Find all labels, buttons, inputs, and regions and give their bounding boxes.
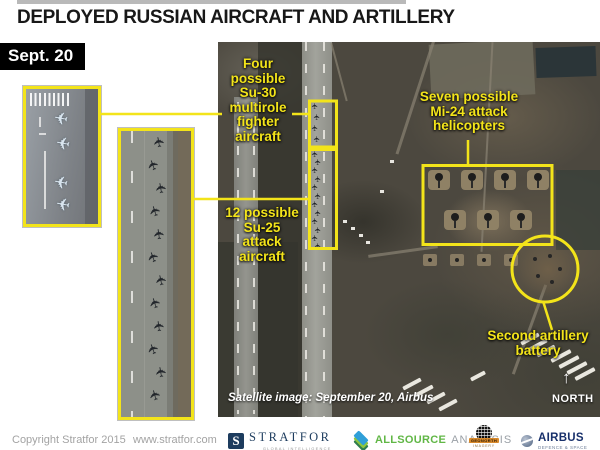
inset-su25-closeup: ✈ ✈ ✈ ✈ ✈ ✈ ✈ ✈ ✈ ✈ ✈ ✈ [118,128,194,420]
artillery-piece [536,274,540,278]
building [438,399,458,412]
helicopter-pad [461,170,483,190]
helicopter-pad [477,210,499,230]
road [330,43,347,101]
copyright-text: Copyright Stratfor 2015 [12,434,126,446]
runway-centerline [44,151,46,209]
helicopter-pad [510,210,532,230]
vehicle [351,227,355,230]
su25-aircraft-icon: ✈ [314,193,322,200]
image-caption: Satellite image: September 20, Airbus [228,392,433,404]
airbus-logo: AIRBUS DEFENCE & SPACE [521,432,587,450]
runway-marking [39,133,46,135]
su30-aircraft-icon: ✈ [313,136,321,143]
airbus-globe-icon [521,435,533,447]
mi24-callout-label: Seven possible Mi-24 attack helicopters [403,90,535,134]
north-label: NORTH [552,393,594,405]
su25-aircraft-icon: ✈ [153,181,169,195]
helicopter-pad [494,170,516,190]
su25-aircraft-icon: ✈ [153,365,169,379]
su25-aircraft-icon: ✈ [153,273,169,287]
artillery-piece [558,267,562,271]
geonorth-logo: GEONORTH IMAGERY [464,425,504,448]
inset-su30-closeup: ✈ ✈ ✈ ✈ [23,86,101,227]
su25-aircraft-icon: ✈ [314,243,322,250]
su30-aircraft-icon: ✈ [311,103,319,110]
runway-edge-line [144,131,145,417]
su25-aircraft-icon: ✈ [311,235,319,242]
su25-aircraft-icon: ✈ [311,218,319,225]
helicopter-pad [428,170,450,190]
terrain-strip [85,89,98,224]
vehicle [380,190,384,193]
geonorth-wordmark: GEONORTH [469,438,499,443]
su25-aircraft-icon: ✈ [147,387,164,402]
runway-marking [39,117,41,127]
footer: Copyright Stratfor 2015 www.stratfor.com… [0,422,600,450]
top-accent-bar [17,0,406,4]
su25-aircraft-icon: ✈ [146,295,163,310]
airbus-wordmark: AIRBUS [538,432,587,444]
page-title: DEPLOYED RUSSIAN AIRCRAFT AND ARTILLERY [17,7,455,29]
helicopter-pad [444,210,466,230]
runway-marking [323,42,325,417]
terrain-strip [178,131,191,417]
stratfor-tagline: GLOBAL INTELLIGENCE [249,446,332,450]
infographic: DEPLOYED RUSSIAN AIRCRAFT AND ARTILLERY … [0,0,600,450]
su30-aircraft-icon: ✈ [53,108,70,127]
vehicle-pad [450,254,464,266]
su30-aircraft-icon: ✈ [53,172,70,191]
su25-aircraft-icon: ✈ [146,203,163,218]
vehicle-pad [477,254,491,266]
runway-centerline [131,131,133,417]
su30-callout-label: Four possible Su-30 multirole fighter ai… [213,57,303,145]
su25-aircraft-icon: ✈ [151,135,167,149]
vehicle [366,241,370,244]
su25-aircraft-icon: ✈ [144,341,161,357]
su30-aircraft-icon: ✈ [313,114,321,121]
terrain-dark-patch [218,242,298,417]
artillery-position [518,242,578,297]
artillery-piece [550,280,554,284]
su25-aircraft-icon: ✈ [311,167,319,174]
su25-aircraft-icon: ✈ [314,159,322,166]
allsource-diamond-icon [352,432,370,448]
su25-aircraft-icon: ✈ [144,249,161,265]
website-link[interactable]: www.stratfor.com [133,434,217,446]
north-arrow-icon: ↑ [562,368,571,388]
su25-aircraft-icon: ✈ [314,227,322,234]
artillery-callout-label: Second artillery battery [477,329,599,358]
artillery-piece [548,254,552,258]
su25-aircraft-icon: ✈ [311,151,319,158]
su30-aircraft-icon: ✈ [55,194,72,213]
helicopter-pad [527,170,549,190]
terrain-dark-patch [556,170,600,250]
su30-aircraft-icon: ✈ [55,133,72,152]
su25-aircraft-icon: ✈ [311,184,319,191]
su25-aircraft-icon: ✈ [311,201,319,208]
su25-aircraft-icon: ✈ [314,176,322,183]
vehicle-pad [504,254,518,266]
allsource-wordmark: ALLSOURCE [375,434,446,446]
geonorth-tagline: IMAGERY [473,444,495,448]
bunker-structure [535,46,596,78]
airbus-tagline: DEFENCE & SPACE [538,445,587,450]
su25-aircraft-icon: ✈ [314,210,322,217]
runway-threshold-marking [30,93,70,106]
date-badge: Sept. 20 [0,43,85,70]
su25-aircraft-icon: ✈ [151,227,166,241]
vehicle-pad [423,254,437,266]
stratfor-wordmark: STRATFOR [249,430,332,445]
su25-aircraft-icon: ✈ [144,157,161,173]
artillery-piece [533,257,537,261]
stratfor-monogram-icon: S [228,433,244,449]
vehicle [390,160,394,163]
su25-callout-label: 12 possible Su-25 attack aircraft [215,206,309,264]
building [470,370,486,381]
vehicle [359,234,363,237]
su25-aircraft-icon: ✈ [151,319,166,333]
su30-aircraft-icon: ✈ [311,125,319,132]
building [402,378,422,391]
vehicle [343,220,347,223]
stratfor-logo: S STRATFOR GLOBAL INTELLIGENCE [228,430,332,450]
